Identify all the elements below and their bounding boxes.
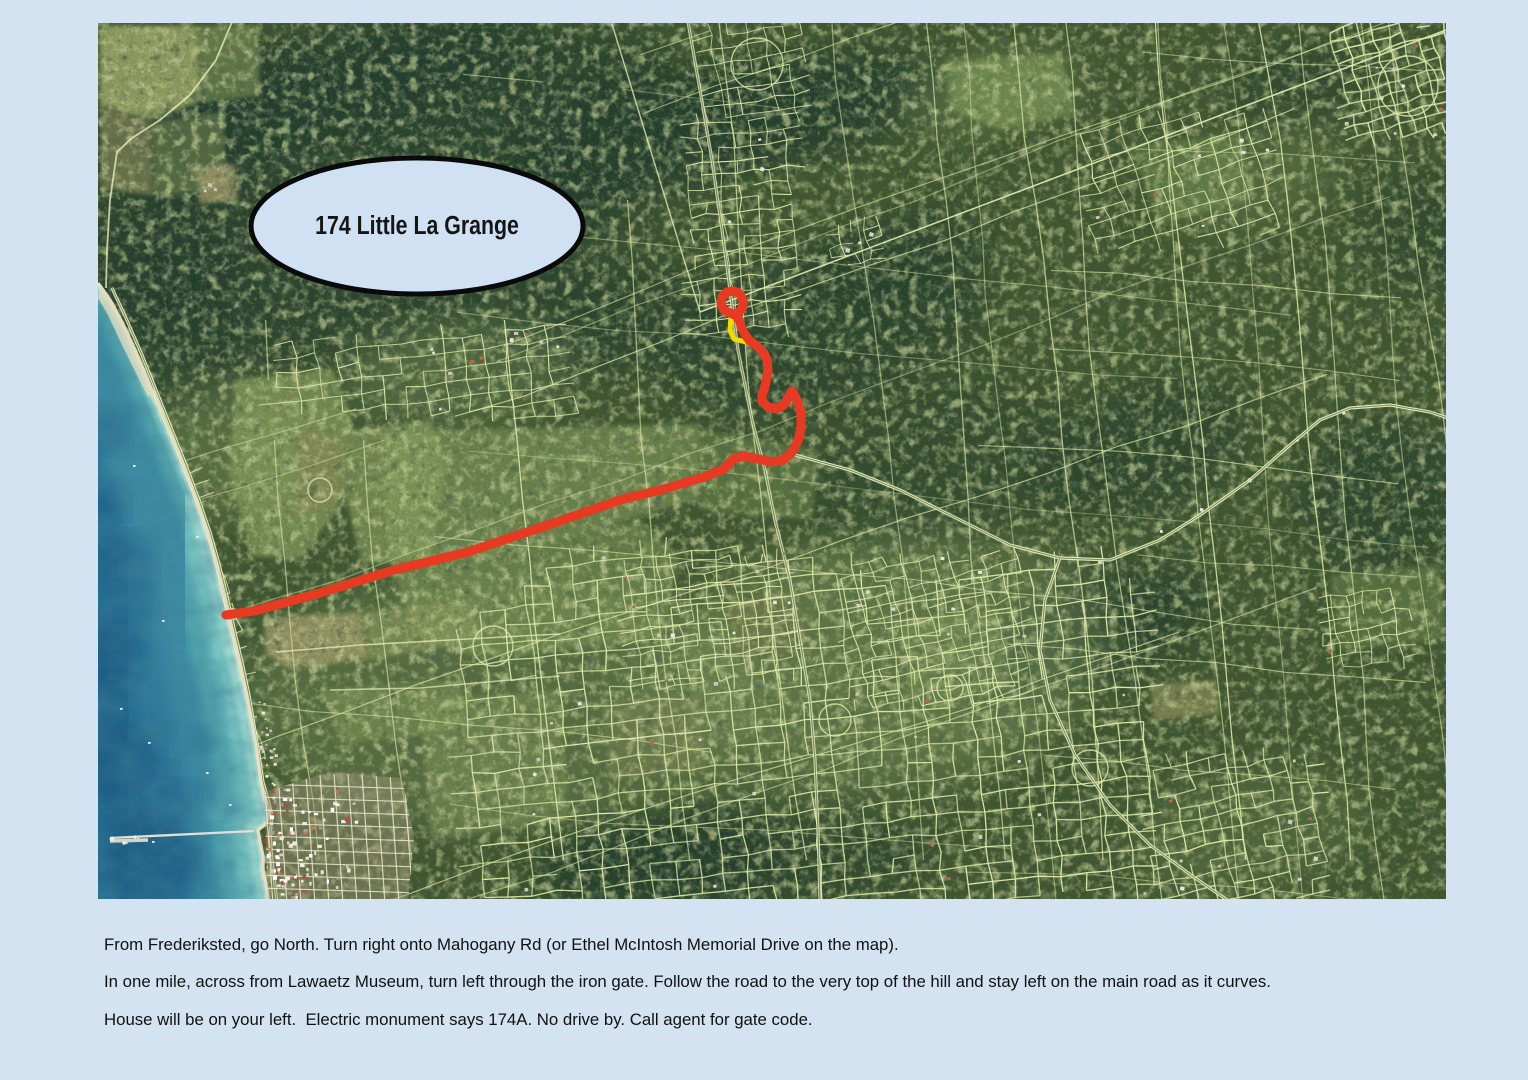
svg-text:174 Little La Grange: 174 Little La Grange — [315, 211, 519, 241]
